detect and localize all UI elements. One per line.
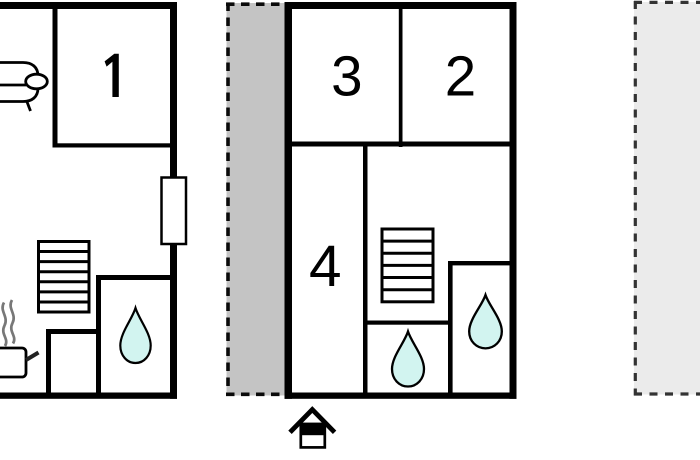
- svg-text:4: 4: [309, 234, 342, 299]
- svg-text:2: 2: [445, 45, 476, 108]
- svg-text:3: 3: [331, 45, 362, 108]
